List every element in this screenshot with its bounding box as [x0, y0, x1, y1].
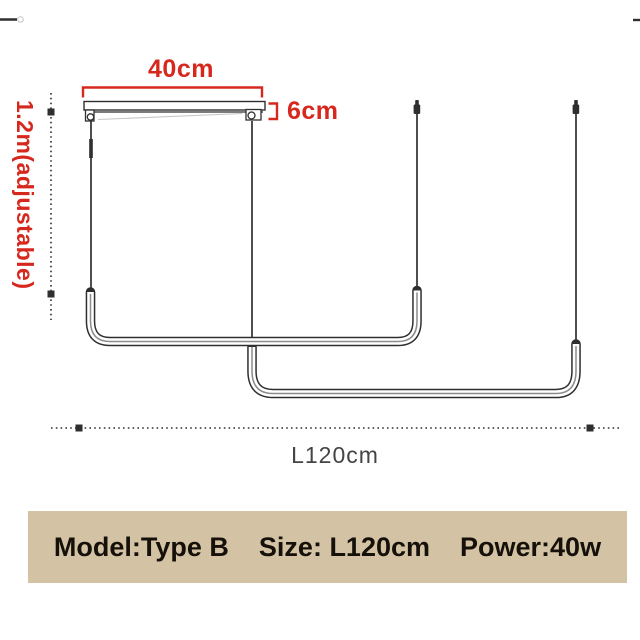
- lower-bar-body: [252, 344, 576, 394]
- top-left-crop-ring: [18, 17, 24, 23]
- spec-banner: Model:Type B Size: L120cm Power:40w: [28, 511, 627, 583]
- anchor-body: [573, 105, 580, 115]
- lower-bar-outline: [252, 344, 576, 394]
- upper-bar-reflection: [91, 293, 418, 342]
- canopy-height-label: 6cm: [287, 97, 339, 126]
- drop-marker-top: [48, 109, 55, 116]
- ceiling-anchor-left: [414, 100, 421, 114]
- drop-height-label: 1.2m(adjustable): [8, 100, 42, 300]
- upper-bar-body: [91, 291, 418, 342]
- canopy-shading-line: [98, 114, 242, 120]
- ceiling-anchor-right: [573, 100, 580, 114]
- spec-size: Size: L120cm: [259, 532, 430, 563]
- lower-bar-reflection: [252, 346, 576, 394]
- canopy-left-hook: [87, 114, 93, 120]
- canopy-height-bracket: [269, 104, 278, 120]
- canopy-right-hook: [248, 112, 255, 119]
- width-label: 40cm: [128, 55, 234, 84]
- spec-power: Power:40w: [460, 532, 601, 563]
- drop-marker-bottom: [48, 291, 55, 298]
- length-marker-right: [587, 425, 594, 432]
- anchor-stem: [415, 100, 419, 105]
- anchor-stem: [574, 100, 578, 105]
- upper-bar-outline: [91, 291, 418, 342]
- anchor-body: [414, 105, 421, 115]
- lamp-bar-lower: [252, 344, 576, 394]
- spec-model: Model:Type B: [54, 532, 229, 563]
- canopy-plate: [84, 102, 265, 111]
- length-marker-left: [76, 425, 83, 432]
- width-bracket: [83, 88, 262, 98]
- ceiling-canopy: [84, 102, 265, 122]
- product-dimension-diagram: 40cm 6cm 1.2m(adjustable) L120cm Model:T…: [0, 0, 640, 640]
- length-label: L120cm: [260, 442, 410, 469]
- lamp-bar-upper: [91, 291, 418, 342]
